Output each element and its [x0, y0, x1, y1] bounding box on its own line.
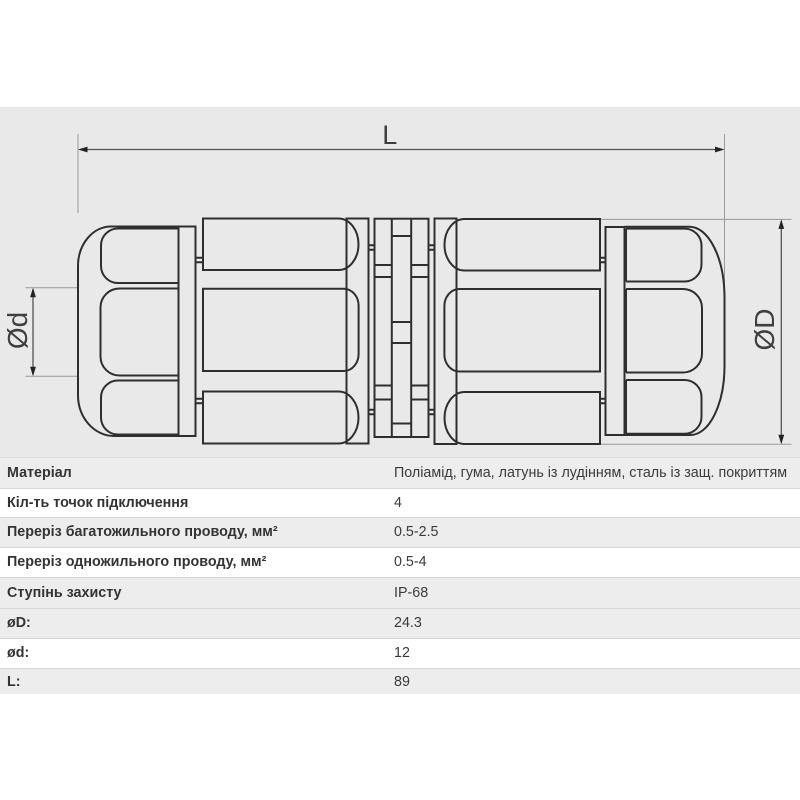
svg-text:ØD: ØD: [749, 309, 780, 351]
svg-text:Ød: Ød: [2, 312, 33, 349]
svg-text:L: L: [382, 120, 397, 150]
